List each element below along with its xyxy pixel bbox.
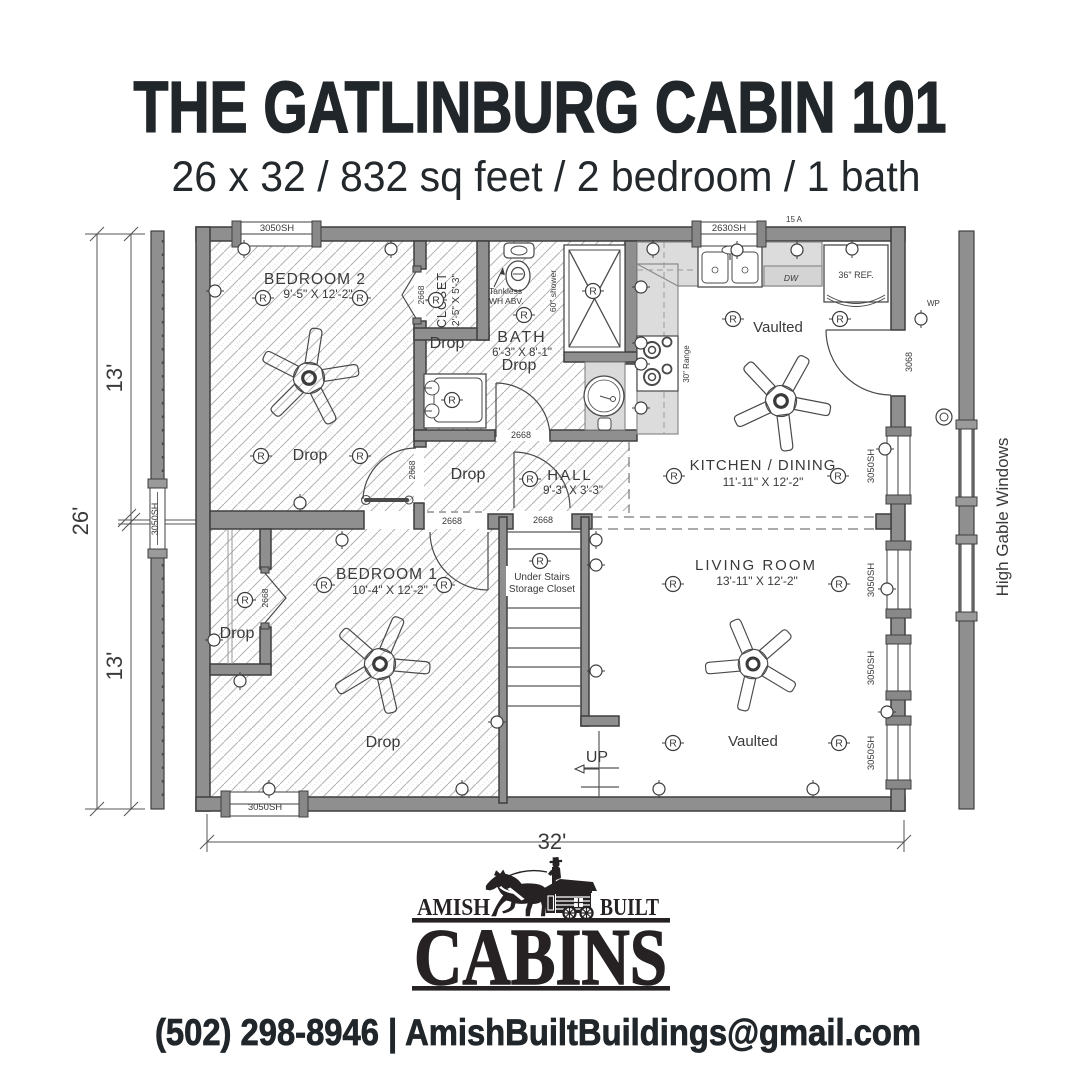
svg-text:3050SH: 3050SH — [150, 503, 160, 536]
svg-text:HALL: HALL — [547, 467, 593, 484]
svg-text:Drop: Drop — [451, 466, 486, 483]
svg-text:2668: 2668 — [442, 516, 462, 526]
svg-text:9'-5" X 12'-2": 9'-5" X 12'-2" — [283, 287, 352, 301]
svg-text:13': 13' — [102, 364, 127, 393]
svg-text:30" Range: 30" Range — [682, 345, 691, 383]
svg-text:3050SH: 3050SH — [866, 449, 877, 483]
svg-text:DW: DW — [784, 273, 799, 283]
svg-text:10'-4" X 12'-2": 10'-4" X 12'-2" — [352, 583, 428, 597]
svg-text:LIVING ROOM: LIVING ROOM — [695, 557, 817, 574]
svg-text:Drop: Drop — [502, 357, 537, 374]
svg-text:WH ABV.: WH ABV. — [489, 296, 524, 306]
svg-text:3050SH: 3050SH — [248, 802, 282, 813]
svg-text:2668: 2668 — [416, 285, 426, 304]
svg-text:3050SH: 3050SH — [260, 223, 294, 234]
svg-text:Storage Closet: Storage Closet — [509, 584, 575, 595]
svg-text:36" REF.: 36" REF. — [838, 270, 873, 280]
svg-text:2668: 2668 — [407, 460, 417, 479]
svg-text:BEDROOM 1: BEDROOM 1 — [336, 566, 438, 583]
svg-text:Vaulted: Vaulted — [753, 319, 803, 336]
svg-text:2630SH: 2630SH — [712, 223, 746, 234]
svg-text:13': 13' — [102, 652, 127, 681]
svg-text:Drop: Drop — [366, 734, 401, 751]
svg-text:3050SH: 3050SH — [866, 736, 877, 770]
svg-text:WP: WP — [927, 299, 940, 308]
svg-text:UP: UP — [586, 749, 608, 766]
svg-text:2668: 2668 — [511, 430, 531, 440]
svg-text:26': 26' — [68, 507, 93, 536]
svg-text:Drop: Drop — [430, 335, 465, 352]
svg-text:Drop: Drop — [220, 625, 255, 642]
svg-text:BEDROOM 2: BEDROOM 2 — [264, 271, 366, 288]
svg-text:60" shower: 60" shower — [548, 270, 558, 312]
svg-text:13'-11" X 12'-2": 13'-11" X 12'-2" — [716, 574, 798, 588]
svg-text:2668: 2668 — [260, 588, 270, 607]
svg-text:KITCHEN / DINING: KITCHEN / DINING — [690, 457, 837, 474]
svg-text:9'-3" X 3'-3": 9'-3" X 3'-3" — [543, 485, 603, 497]
svg-text:Vaulted: Vaulted — [728, 733, 778, 750]
svg-text:3050SH: 3050SH — [866, 563, 877, 597]
svg-text:Tankless: Tankless — [489, 286, 522, 296]
svg-text:3068: 3068 — [904, 352, 914, 372]
svg-text:2'-5" X 5'-3": 2'-5" X 5'-3" — [451, 274, 462, 327]
svg-text:Under Stairs: Under Stairs — [514, 572, 570, 583]
svg-text:BATH: BATH — [497, 329, 546, 346]
svg-text:2668: 2668 — [533, 515, 553, 525]
svg-text:3050SH: 3050SH — [866, 651, 877, 685]
svg-text:Drop: Drop — [293, 447, 328, 464]
svg-text:11'-11" X 12'-2": 11'-11" X 12'-2" — [723, 475, 804, 489]
svg-text:(502) 298-8946 | AmishBuiltBui: (502) 298-8946 | AmishBuiltBuildings@gma… — [155, 1012, 921, 1054]
svg-text:High Gable Windows: High Gable Windows — [993, 438, 1012, 597]
svg-text:15 A: 15 A — [786, 215, 803, 224]
